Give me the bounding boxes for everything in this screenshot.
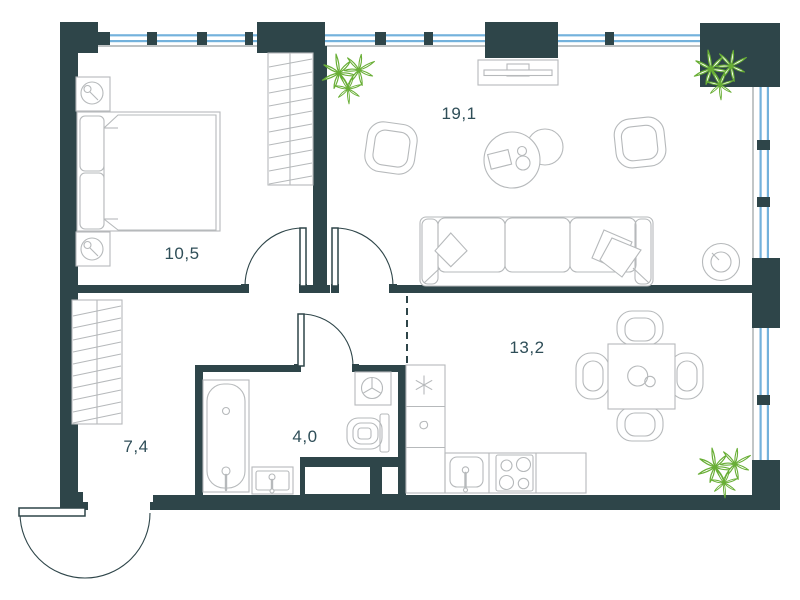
nightstand-bottom [76,232,110,266]
coffee-table [484,129,563,188]
bedroom-door [245,228,306,286]
kitchen-tall-cabinets [406,365,445,493]
floor-plan: 10,5 19,1 13,2 7,4 4,0 [0,0,800,600]
dining-table [608,344,675,409]
room-label-hallway: 7,4 [123,437,148,457]
wardrobe-bedroom [268,53,313,185]
armchair-right [613,116,668,170]
kitchen-sink [450,457,483,492]
stove-burners [496,455,533,491]
toilet [347,414,389,452]
bed [77,112,220,231]
armchair-left [363,120,419,176]
sofa [420,217,653,286]
plant-icon [319,51,377,107]
duct-niches [305,467,398,494]
bathtub [203,380,249,492]
drop-icon [420,421,428,428]
washbasin [252,467,293,494]
room-label-bedroom: 10,5 [164,244,199,264]
entrance-door [19,508,150,578]
side-table [703,244,740,281]
kitchen-counter [445,453,586,493]
asterisk-icon [416,376,432,395]
room-label-kitchen-dining: 13,2 [509,338,544,358]
wardrobe-hallway [72,300,122,424]
dining-set [576,311,703,441]
floor-plan-drawing [0,0,800,600]
room-label-living-room: 19,1 [441,104,476,124]
tv-console [478,60,558,85]
room-label-bathroom: 4,0 [292,427,317,447]
plant-icon [695,445,753,501]
living-room-door [332,228,393,286]
washing-machine-icon [355,372,391,405]
bathroom-door [298,314,353,366]
nightstand-top [76,77,110,111]
